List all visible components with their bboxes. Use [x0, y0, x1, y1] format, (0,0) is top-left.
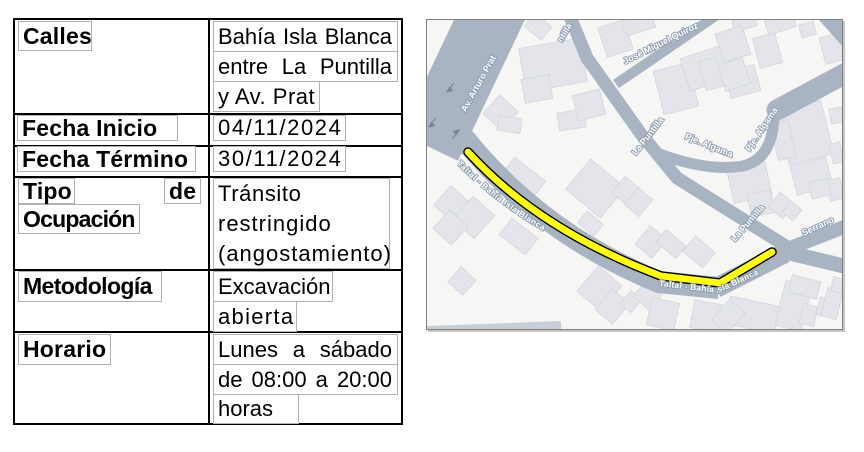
- svg-text:Pje. Algama: Pje. Algama: [684, 131, 736, 160]
